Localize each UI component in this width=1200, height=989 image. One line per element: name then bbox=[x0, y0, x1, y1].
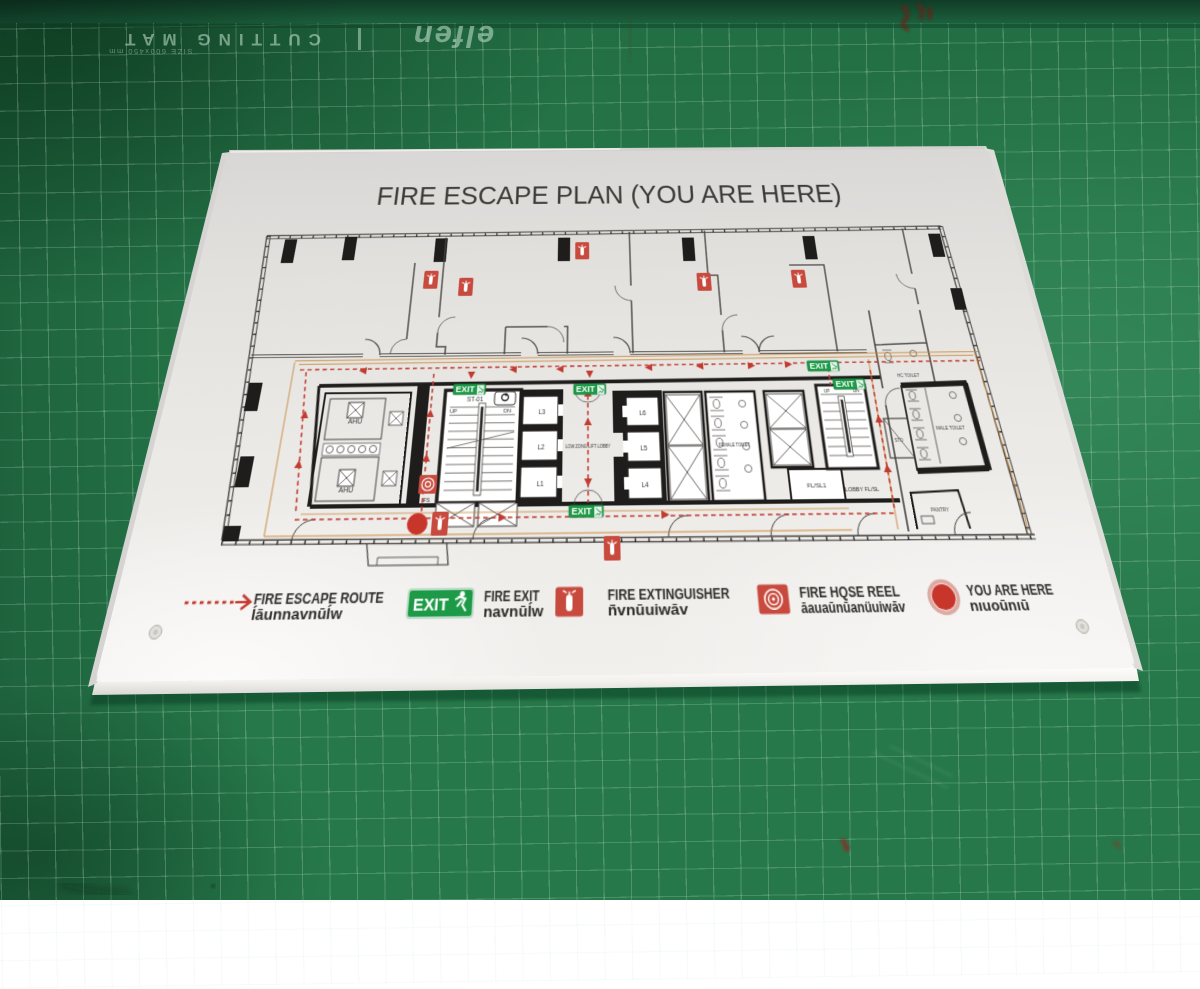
svg-text:L1: L1 bbox=[536, 481, 544, 489]
svg-text:L6: L6 bbox=[639, 410, 647, 418]
svg-text:STO: STO bbox=[894, 438, 904, 443]
svg-text:FL/SL1: FL/SL1 bbox=[807, 482, 828, 489]
svg-text:HC TOILET: HC TOILET bbox=[897, 373, 920, 378]
svg-text:ST-01: ST-01 bbox=[467, 396, 484, 404]
svg-text:EXIT: EXIT bbox=[412, 596, 449, 615]
svg-text:DN: DN bbox=[503, 407, 511, 413]
svg-text:ĺāunnavnūĺw: ĺāunnavnūĺw bbox=[250, 604, 345, 623]
svg-text:ăauaūnūanüuiwāv: ăauaūnūanüuiwāv bbox=[800, 598, 908, 617]
svg-text:PANTRY: PANTRY bbox=[931, 507, 951, 513]
svg-text:EXIT: EXIT bbox=[455, 386, 476, 395]
svg-text:navnūĺw: navnūĺw bbox=[483, 602, 545, 620]
svg-text:FIRE ESCAPE PLAN (YOU ARE H: FIRE ESCAPE PLAN (YOU ARE HERE) bbox=[375, 178, 844, 211]
svg-text:AHU: AHU bbox=[338, 487, 354, 496]
svg-text:ñvnūuiwăv: ñvnūuiwăv bbox=[608, 600, 690, 618]
svg-text:L2: L2 bbox=[537, 444, 545, 452]
svg-text:L5: L5 bbox=[640, 445, 648, 453]
svg-text:EXIT: EXIT bbox=[571, 507, 593, 517]
svg-text:EXIT: EXIT bbox=[835, 380, 856, 389]
svg-text:nıuoūnıū: nıuoūnıū bbox=[968, 596, 1031, 614]
svg-text:UP: UP bbox=[449, 408, 457, 414]
svg-text:FS: FS bbox=[423, 497, 431, 504]
svg-text:LOBBY FL/SL: LOBBY FL/SL bbox=[844, 485, 880, 492]
svg-text:EXIT: EXIT bbox=[809, 362, 830, 371]
svg-text:MALE TOILET: MALE TOILET bbox=[936, 426, 966, 431]
svg-text:AHU: AHU bbox=[347, 418, 363, 426]
svg-text:EXIT: EXIT bbox=[576, 385, 596, 394]
svg-text:L3: L3 bbox=[538, 409, 545, 417]
svg-text:FEMALE TOILET: FEMALE TOILET bbox=[719, 442, 751, 448]
svg-text:L4: L4 bbox=[641, 482, 649, 490]
